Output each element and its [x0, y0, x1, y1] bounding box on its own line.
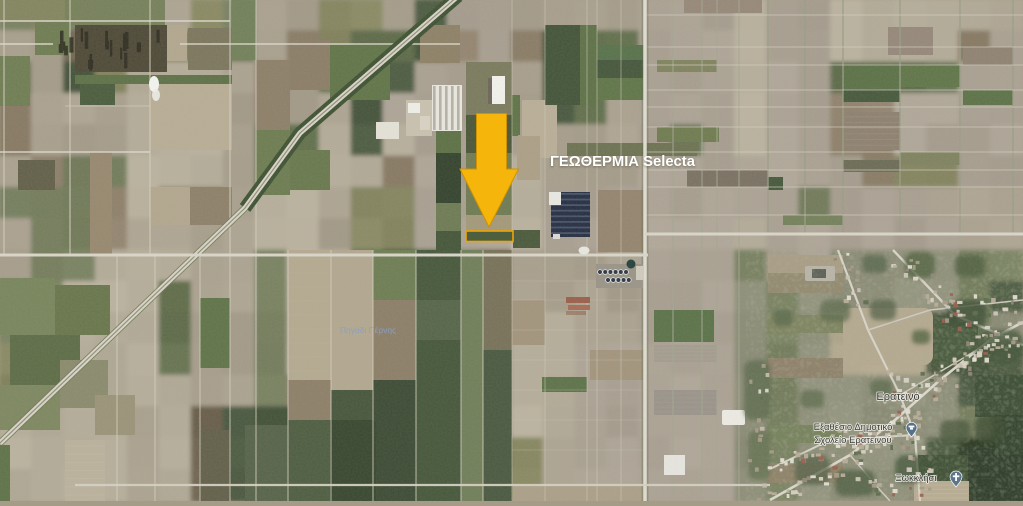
svg-text:Ερατεινό: Ερατεινό — [876, 391, 919, 403]
svg-text:Πηγάδι Πέρνης: Πηγάδι Πέρνης — [340, 325, 396, 335]
svg-text:Εξαθέσιο Δημοτικό: Εξαθέσιο Δημοτικό — [814, 422, 893, 433]
svg-text:ΓΕΩΘΕΡΜΙΑ Selecta: ΓΕΩΘΕΡΜΙΑ Selecta — [550, 154, 696, 170]
svg-text:Ξωκκλήσι: Ξωκκλήσι — [895, 473, 936, 484]
svg-text:Σχολείο Ερατεινού: Σχολείο Ερατεινού — [814, 435, 891, 446]
